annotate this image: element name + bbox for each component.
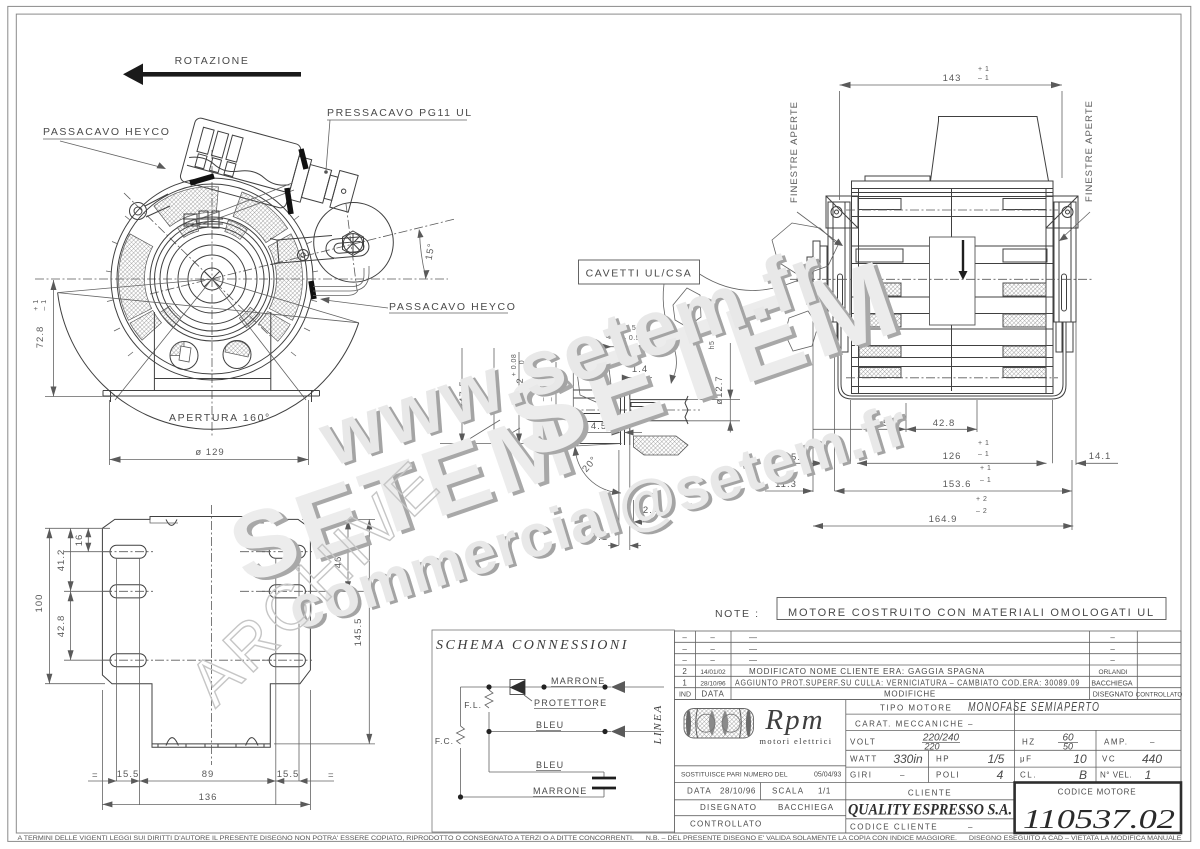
svg-text:–: – [968, 823, 974, 832]
svg-text:42.8: 42.8 [56, 615, 67, 638]
svg-text:PROTETTORE: PROTETTORE [534, 698, 607, 708]
svg-text:– 1: – 1 [980, 477, 991, 484]
svg-text:MARRONE: MARRONE [533, 786, 587, 796]
svg-text:440: 440 [1142, 752, 1162, 766]
svg-text:– 2: – 2 [976, 508, 987, 515]
svg-text:MONOFASE SEMIAPERTO: MONOFASE SEMIAPERTO [968, 700, 1100, 714]
svg-text:F.C.: F.C. [435, 736, 454, 746]
svg-text:+ 1: + 1 [33, 299, 40, 310]
svg-text:PRESSACAVO PG11 UL: PRESSACAVO PG11 UL [327, 107, 473, 119]
svg-text:SOSTITUISCE PARI NUMERO DEL: SOSTITUISCE PARI NUMERO DEL [681, 772, 788, 779]
svg-text:–: – [710, 656, 715, 665]
svg-text:—: — [749, 644, 758, 653]
svg-text:– 1: – 1 [978, 75, 989, 82]
svg-text:FINESTRE APERTE: FINESTRE APERTE [789, 101, 800, 203]
svg-text:ø 129: ø 129 [195, 447, 224, 458]
svg-text:ORLANDI: ORLANDI [1099, 669, 1128, 676]
svg-text:143: 143 [943, 73, 962, 84]
svg-text:μF: μF [1020, 755, 1033, 764]
svg-text:1: 1 [1145, 768, 1152, 782]
svg-text:—: — [749, 656, 758, 665]
svg-text:APERTURA 160°: APERTURA 160° [169, 412, 271, 424]
svg-text:– 1: – 1 [41, 299, 48, 310]
svg-text:–: – [710, 644, 715, 653]
svg-text:CODICE CLIENTE: CODICE CLIENTE [850, 823, 938, 832]
svg-text:SCHEMA CONNESSIONI: SCHEMA CONNESSIONI [436, 638, 629, 653]
svg-text:B: B [1079, 768, 1087, 782]
svg-text:AMP.: AMP. [1104, 738, 1129, 747]
svg-text:AGGIUNTO PROT.SUPERF.SU CULLA:: AGGIUNTO PROT.SUPERF.SU CULLA: VERNICIAT… [735, 678, 1080, 687]
svg-text:–: – [1110, 656, 1115, 665]
svg-text:164.9: 164.9 [929, 514, 958, 525]
svg-text:–: – [1110, 644, 1115, 653]
svg-text:WATT: WATT [850, 755, 878, 764]
svg-text:330in: 330in [893, 752, 923, 766]
svg-text:CL.: CL. [1020, 771, 1037, 780]
svg-text:10: 10 [1073, 752, 1087, 766]
svg-text:–: – [682, 633, 687, 642]
svg-text:ROTAZIONE: ROTAZIONE [175, 55, 250, 67]
svg-text:42.8: 42.8 [933, 418, 956, 429]
svg-text:BACCHIEGA: BACCHIEGA [1091, 680, 1133, 687]
svg-text:LINEA: LINEA [652, 704, 664, 746]
svg-text:IND: IND [679, 692, 691, 699]
svg-text:100: 100 [34, 594, 45, 613]
svg-text:VOLT: VOLT [850, 738, 876, 747]
svg-text:CLIENTE: CLIENTE [908, 789, 952, 798]
svg-text:50: 50 [1063, 742, 1073, 752]
svg-text:HP: HP [936, 755, 950, 764]
svg-text:126: 126 [943, 451, 962, 462]
svg-text:4: 4 [997, 768, 1004, 782]
svg-text:PASSACAVO HEYCO: PASSACAVO HEYCO [389, 301, 516, 313]
svg-text:CARAT. MECCANICHE: CARAT. MECCANICHE [855, 720, 964, 729]
svg-text:–: – [710, 633, 715, 642]
svg-text:GIRI: GIRI [850, 771, 872, 780]
svg-text:–: – [1110, 633, 1115, 642]
svg-text:NOTE :: NOTE : [715, 608, 760, 620]
svg-text:=: = [328, 770, 335, 781]
svg-text:MODIFICHE: MODIFICHE [884, 690, 936, 699]
svg-text:1/1: 1/1 [818, 787, 831, 796]
svg-text:14.1: 14.1 [1089, 451, 1112, 462]
svg-text:VC: VC [1102, 755, 1116, 764]
svg-text:110537.02: 110537.02 [1023, 804, 1175, 834]
svg-text:28/10/96: 28/10/96 [720, 787, 756, 796]
svg-text:CODICE MOTORE: CODICE MOTORE [1058, 788, 1137, 797]
svg-text:MARRONE: MARRONE [551, 676, 605, 686]
svg-text:CONTROLLATO: CONTROLLATO [690, 820, 762, 829]
svg-text:+ 1: + 1 [980, 465, 991, 472]
svg-text:28/10/96: 28/10/96 [700, 680, 726, 687]
svg-text:TIPO MOTORE: TIPO MOTORE [880, 704, 952, 713]
svg-text:05/04/93: 05/04/93 [814, 772, 841, 779]
svg-text:DATA: DATA [701, 690, 724, 699]
svg-text:136: 136 [199, 792, 218, 803]
svg-text:POLI: POLI [936, 771, 960, 780]
svg-text:BLEU: BLEU [536, 720, 564, 730]
svg-text:CONTROLLATO: CONTROLLATO [1136, 692, 1183, 699]
svg-text:SCALA: SCALA [772, 787, 804, 796]
svg-text:QUALITY ESPRESSO S.A.: QUALITY ESPRESSO S.A. [848, 802, 1012, 819]
svg-text:motori elettrici: motori elettrici [759, 736, 832, 746]
svg-text:15.5: 15.5 [117, 769, 140, 780]
svg-text:14/01/02: 14/01/02 [700, 669, 726, 676]
svg-text:DATA: DATA [687, 787, 712, 796]
svg-text:–: – [1150, 738, 1156, 747]
svg-text:+ 1: + 1 [978, 440, 989, 447]
svg-text:BACCHIEGA: BACCHIEGA [778, 803, 834, 812]
svg-text:72.8: 72.8 [35, 326, 46, 349]
svg-text:MOTORE COSTRUITO CON MATERIALI: MOTORE COSTRUITO CON MATERIALI OMOLOGATI… [788, 607, 1155, 619]
svg-text:41.2: 41.2 [56, 549, 67, 572]
svg-text:2: 2 [682, 667, 687, 676]
svg-text:–: – [900, 771, 906, 780]
svg-text:F.L.: F.L. [464, 700, 482, 710]
svg-text:—: — [749, 633, 758, 642]
svg-text:Rpm: Rpm [764, 704, 824, 736]
svg-text:220: 220 [923, 742, 939, 752]
svg-text:15.5: 15.5 [277, 769, 300, 780]
svg-text:– 1: – 1 [978, 451, 989, 458]
svg-text:+ 1: + 1 [978, 66, 989, 73]
svg-text:PASSACAVO HEYCO: PASSACAVO HEYCO [43, 126, 170, 138]
svg-text:DISEGNATO: DISEGNATO [700, 803, 757, 812]
svg-text:16: 16 [74, 534, 85, 547]
svg-text:MODIFICATO NOME CLIENTE ERA: G: MODIFICATO NOME CLIENTE ERA: GAGGIA SPAG… [749, 667, 985, 676]
svg-text:–: – [682, 644, 687, 653]
svg-text:+ 2: + 2 [976, 496, 987, 503]
svg-text:–: – [968, 720, 974, 729]
svg-text:N° VEL.: N° VEL. [1100, 771, 1132, 780]
svg-text:–: – [682, 656, 687, 665]
svg-text:=: = [92, 770, 99, 781]
svg-text:89: 89 [202, 769, 215, 780]
svg-text:1/5: 1/5 [988, 752, 1005, 766]
svg-text:BLEU: BLEU [536, 760, 564, 770]
svg-text:DISEGNATO: DISEGNATO [1093, 692, 1134, 699]
svg-text:A TERMINI DELLE VIGENTI LEGGI: A TERMINI DELLE VIGENTI LEGGI SUI DIRITT… [18, 835, 1182, 842]
svg-text:FINESTRE APERTE: FINESTRE APERTE [1084, 100, 1095, 202]
svg-text:153.6: 153.6 [943, 479, 972, 490]
svg-text:HZ: HZ [1022, 738, 1036, 747]
svg-text:1: 1 [682, 678, 687, 687]
